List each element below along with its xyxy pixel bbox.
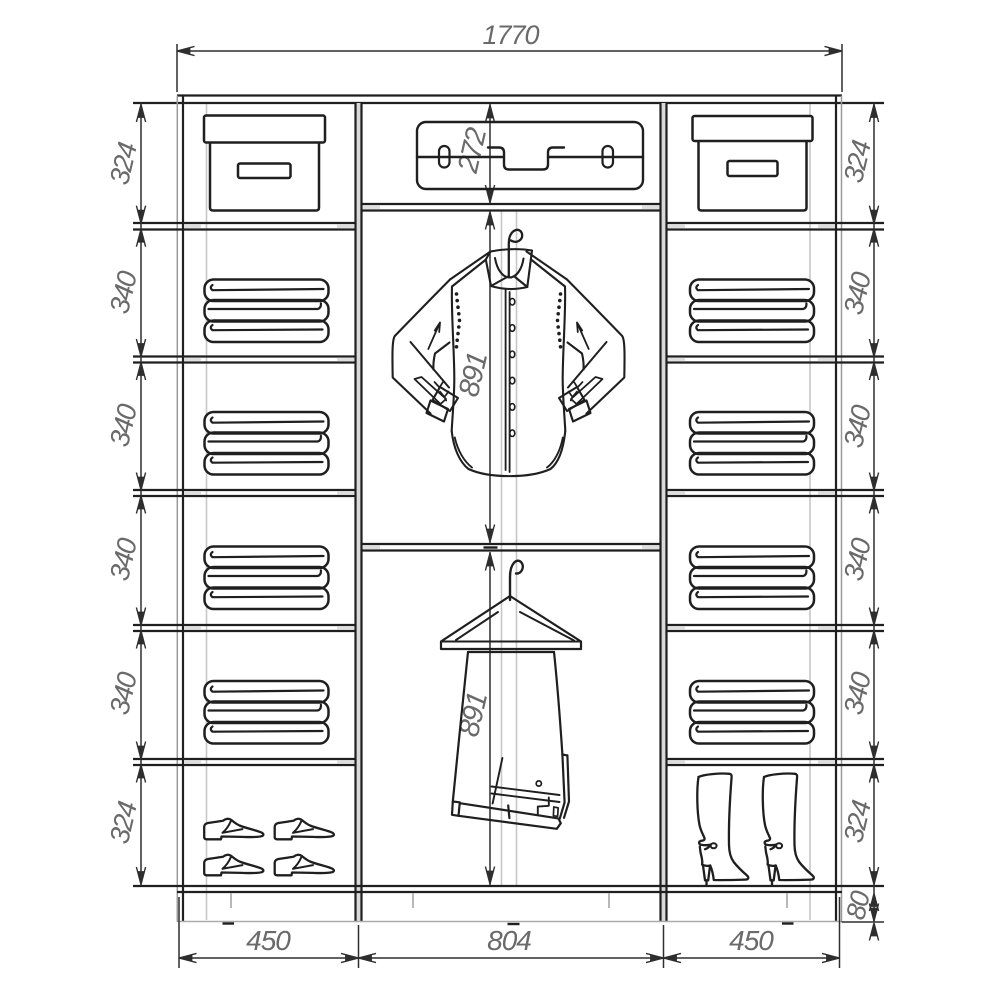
svg-text:804: 804	[487, 925, 531, 956]
svg-text:450: 450	[246, 925, 291, 956]
svg-text:450: 450	[729, 925, 774, 956]
svg-text:1770: 1770	[482, 20, 539, 50]
